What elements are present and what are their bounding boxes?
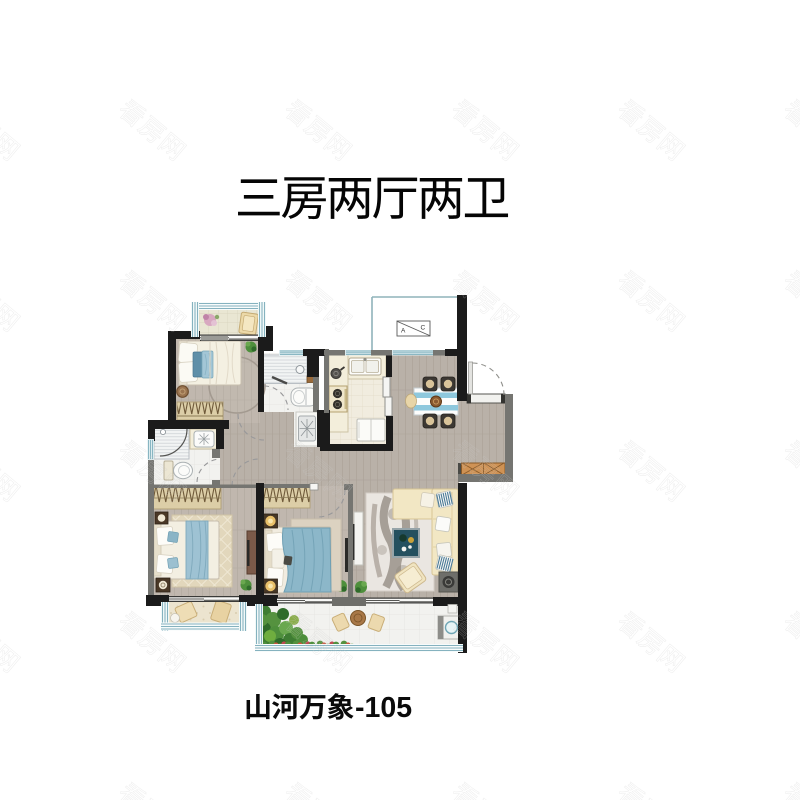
svg-text:A: A (401, 328, 406, 335)
svg-text:C: C (421, 325, 426, 332)
svg-text:-105: -105 (355, 692, 412, 724)
